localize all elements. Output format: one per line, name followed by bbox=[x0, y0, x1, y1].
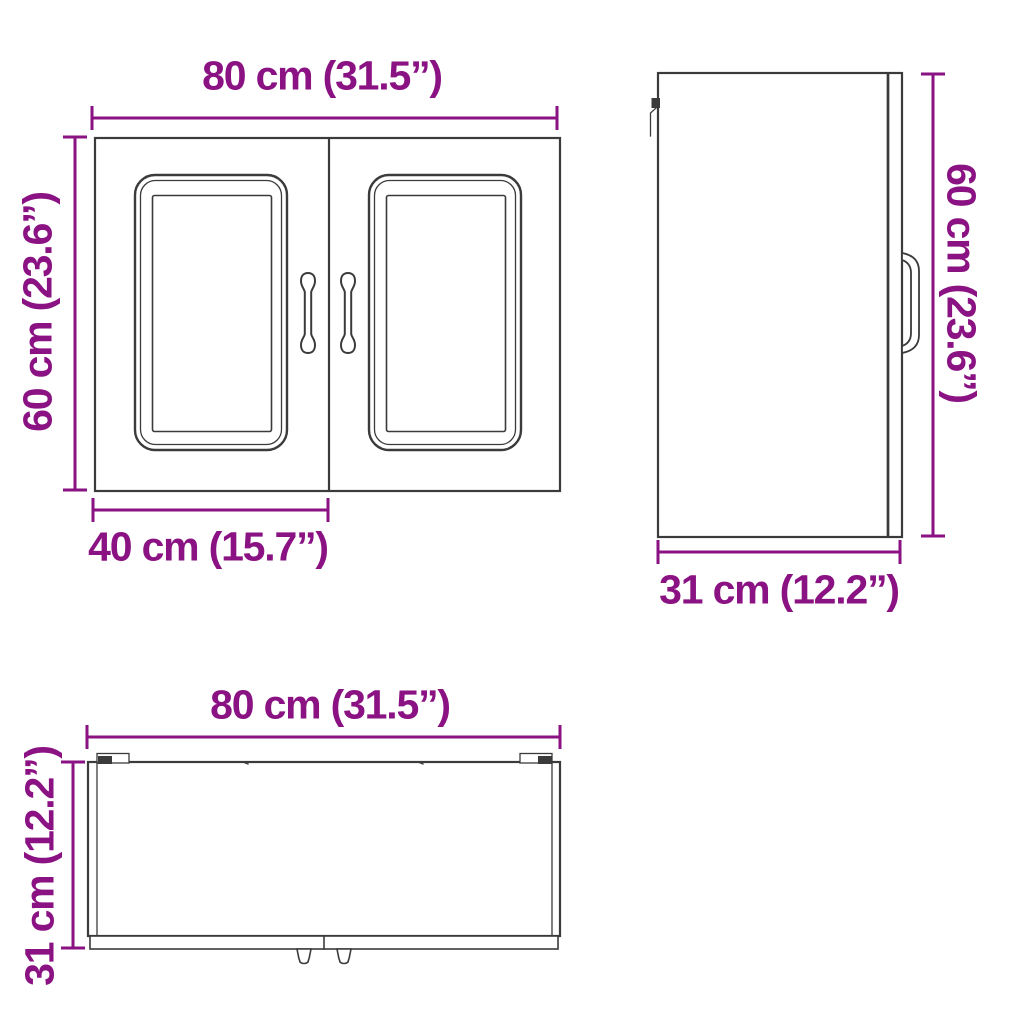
dim-label-side-depth: 31 cm (12.2”) bbox=[659, 570, 899, 611]
top-view bbox=[61, 725, 560, 964]
glass-pane bbox=[153, 196, 272, 432]
dim-label-top-depth: 31 cm (12.2”) bbox=[20, 746, 61, 986]
dim-label-front-door-width: 40 cm (15.7”) bbox=[88, 527, 328, 568]
line-art bbox=[0, 0, 1024, 1024]
front-view bbox=[63, 106, 560, 522]
dim-label-front-height: 60 cm (23.6”) bbox=[18, 192, 59, 432]
dim-label-front-width: 80 cm (31.5”) bbox=[202, 56, 442, 97]
dim-top-width bbox=[87, 725, 560, 749]
top-hinge-left bbox=[97, 754, 129, 765]
dim-front-width bbox=[92, 106, 557, 130]
dim-top-depth bbox=[61, 762, 85, 948]
dim-label-side-height: 60 cm (23.6”) bbox=[941, 163, 982, 403]
glass-frame-mid bbox=[141, 181, 282, 445]
front-cabinet-outline bbox=[95, 138, 560, 491]
dim-side-depth bbox=[658, 540, 900, 564]
top-handle-peg-left bbox=[297, 949, 311, 964]
right-door-handle bbox=[341, 273, 355, 353]
left-door-handle bbox=[301, 273, 315, 353]
glass-frame-outer bbox=[369, 175, 521, 450]
glass-pane bbox=[387, 196, 506, 432]
dim-front-height bbox=[63, 137, 87, 490]
top-cabinet-outline bbox=[88, 762, 560, 936]
glass-frame-mid bbox=[375, 181, 516, 445]
top-handle-peg-right bbox=[337, 949, 351, 964]
side-cabinet-outline bbox=[658, 73, 902, 537]
dim-label-top-width: 80 cm (31.5”) bbox=[210, 685, 450, 726]
left-door-glass-frame bbox=[135, 175, 287, 450]
glass-frame-outer bbox=[135, 175, 287, 450]
cabinet-dimension-diagram: 80 cm (31.5”) 60 cm (23.6”) 40 cm (15.7”… bbox=[0, 0, 1024, 1024]
side-view bbox=[651, 73, 946, 564]
side-door-handle bbox=[902, 253, 919, 353]
right-door-glass-frame bbox=[369, 175, 521, 450]
dim-front-door-width bbox=[93, 498, 328, 522]
top-hinge-right bbox=[520, 754, 552, 765]
